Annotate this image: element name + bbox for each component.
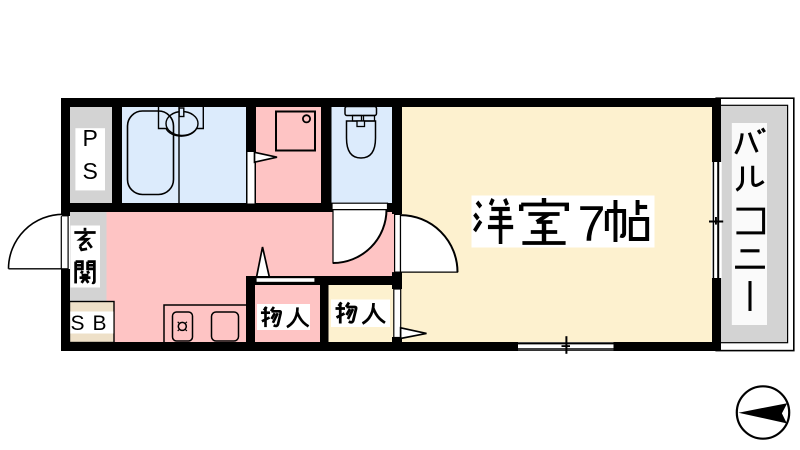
svg-text:S: S: [70, 312, 84, 335]
svg-text:P: P: [83, 125, 98, 151]
svg-text:B: B: [92, 312, 106, 335]
svg-text:7: 7: [578, 196, 606, 252]
svg-text:S: S: [83, 158, 98, 184]
